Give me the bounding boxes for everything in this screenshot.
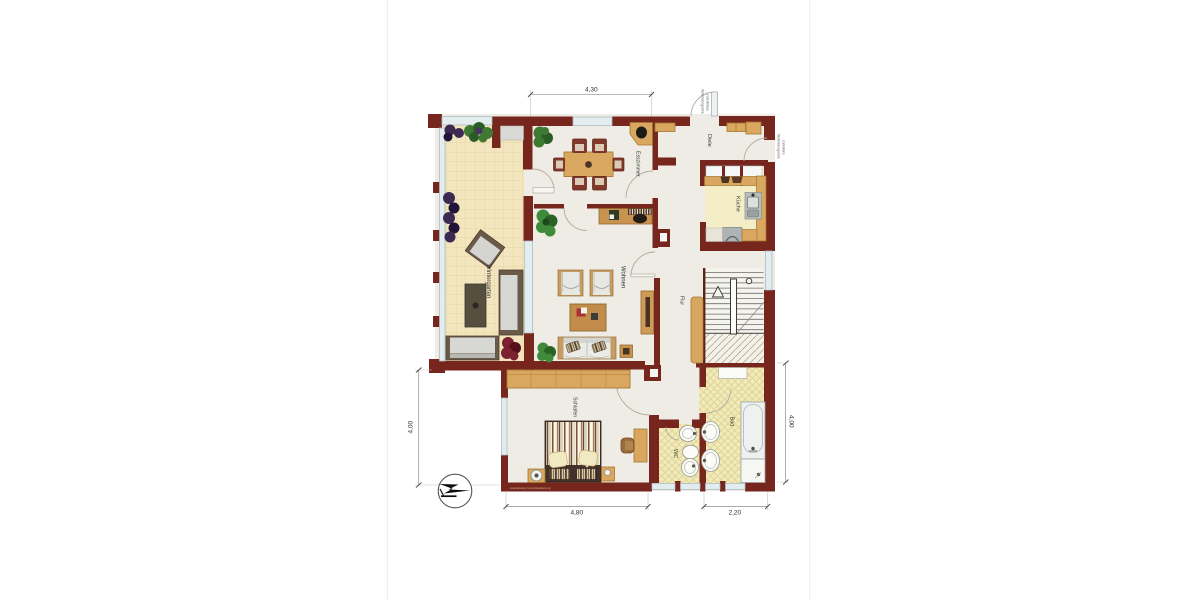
svg-text:4,80: 4,80 (571, 510, 584, 517)
svg-text:Verbindungstüre: Verbindungstüre (777, 134, 781, 159)
svg-text:4,30: 4,30 (585, 87, 598, 94)
svg-text:Esszimmer: Esszimmer (635, 151, 641, 177)
svg-text:Verbindungstüre: Verbindungstüre (701, 89, 705, 114)
svg-text:Schlafen: Schlafen (572, 397, 578, 417)
svg-text:Wohnen: Wohnen (620, 266, 626, 288)
svg-text:WC: WC (672, 449, 678, 458)
svg-text:Flur: Flur (679, 296, 685, 305)
svg-text:4,00: 4,00 (788, 415, 795, 428)
svg-text:Diele: Diele (706, 134, 712, 147)
svg-text:2,20: 2,20 (729, 510, 742, 517)
svg-text:Küche: Küche (735, 196, 741, 212)
svg-text:Ausstattung Grundrissplanung: Ausstattung Grundrissplanung (510, 486, 551, 490)
svg-text:4,00: 4,00 (408, 420, 415, 433)
svg-text:zum Büro: zum Büro (782, 140, 786, 155)
svg-text:Wintergarten: Wintergarten (485, 264, 491, 298)
svg-text:Bad: Bad (729, 417, 735, 427)
svg-text:zum Anbau: zum Anbau (706, 94, 710, 111)
